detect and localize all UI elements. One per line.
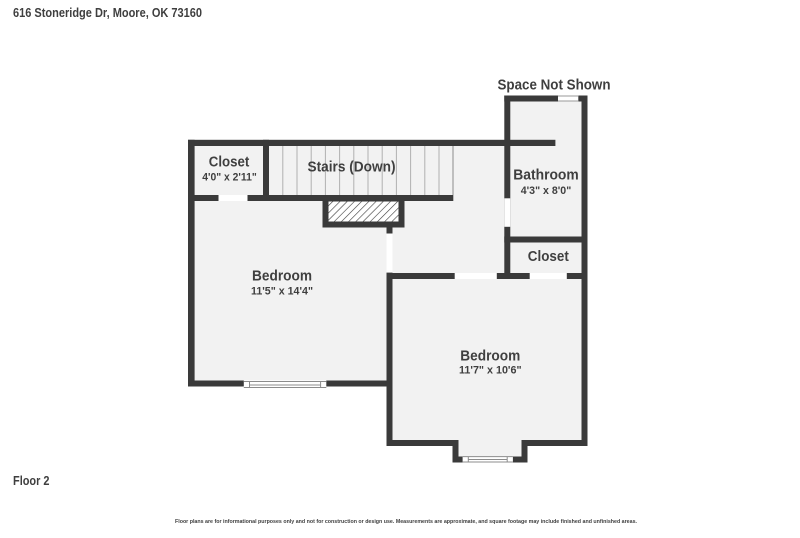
svg-text:4'3" x 8'0": 4'3" x 8'0" xyxy=(521,185,572,197)
svg-text:Bedroom: Bedroom xyxy=(460,349,520,365)
svg-text:Space Not Shown: Space Not Shown xyxy=(498,77,611,94)
svg-text:Closet: Closet xyxy=(209,155,250,171)
svg-text:Stairs (Down): Stairs (Down) xyxy=(308,160,396,176)
svg-text:616 Stoneridge Dr, Moore, OK 7: 616 Stoneridge Dr, Moore, OK 73160 xyxy=(13,6,202,20)
svg-text:4'0" x 2'11": 4'0" x 2'11" xyxy=(202,172,257,184)
svg-text:Floor 2: Floor 2 xyxy=(13,474,50,488)
svg-text:11'5" x 14'4": 11'5" x 14'4" xyxy=(251,286,313,298)
svg-text:11'7" x 10'6": 11'7" x 10'6" xyxy=(459,365,522,377)
svg-text:Closet: Closet xyxy=(528,249,569,265)
svg-text:Bathroom: Bathroom xyxy=(513,168,579,184)
svg-text:Bedroom: Bedroom xyxy=(252,269,312,285)
svg-text:Floor plans are for informatio: Floor plans are for informational purpos… xyxy=(175,519,637,525)
